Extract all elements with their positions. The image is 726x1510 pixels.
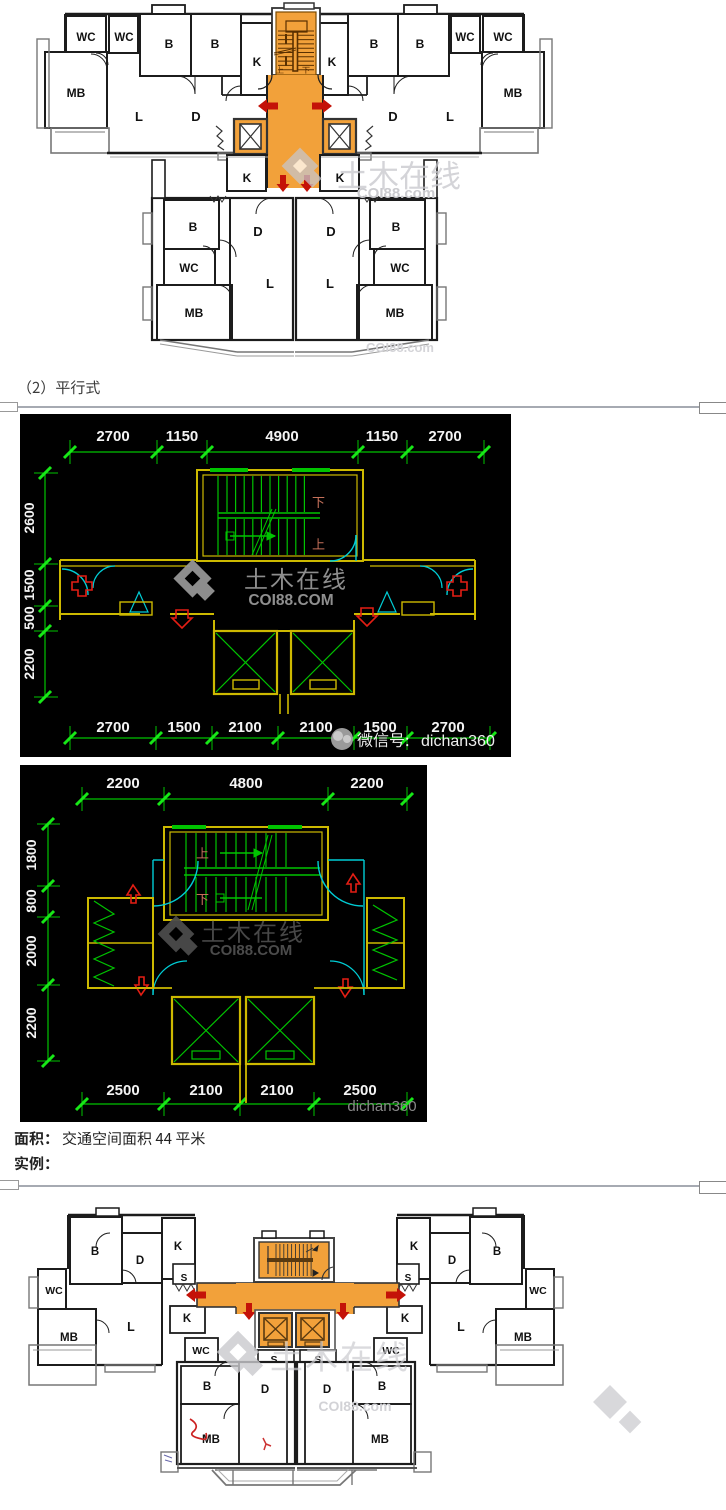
svg-text:WC: WC xyxy=(45,1285,63,1297)
svg-text:MB: MB xyxy=(67,86,86,100)
svg-text:D: D xyxy=(253,224,262,239)
svg-text:4900: 4900 xyxy=(265,428,298,445)
svg-text:L: L xyxy=(266,276,274,291)
svg-text:2200: 2200 xyxy=(23,1007,39,1038)
svg-text:2100: 2100 xyxy=(260,1082,293,1099)
svg-text:2200: 2200 xyxy=(106,775,139,792)
svg-text:B: B xyxy=(493,1246,501,1258)
svg-text:L: L xyxy=(446,109,454,124)
svg-text:2700: 2700 xyxy=(96,428,129,445)
svg-text:B: B xyxy=(165,37,174,51)
svg-text:B: B xyxy=(416,37,425,51)
svg-text:K: K xyxy=(253,55,262,69)
svg-text:WC: WC xyxy=(529,1285,547,1297)
svg-text:1500: 1500 xyxy=(21,569,37,600)
svg-text:1150: 1150 xyxy=(166,428,199,445)
svg-text:D: D xyxy=(261,1384,269,1396)
svg-text:4800: 4800 xyxy=(229,775,262,792)
svg-text:2100: 2100 xyxy=(228,719,261,736)
svg-text:WC: WC xyxy=(179,263,198,275)
svg-text:D: D xyxy=(191,109,200,124)
svg-text:S: S xyxy=(181,1273,188,1284)
svg-text:COI88.COM: COI88.COM xyxy=(248,592,333,609)
svg-text:D: D xyxy=(388,109,397,124)
svg-text:2600: 2600 xyxy=(21,502,37,533)
svg-text:B: B xyxy=(189,220,198,234)
svg-text:S: S xyxy=(405,1273,412,1284)
svg-text:COI88.com: COI88.com xyxy=(366,340,434,355)
svg-text:WC: WC xyxy=(76,32,95,44)
svg-text:WC: WC xyxy=(114,32,133,44)
svg-text:WC: WC xyxy=(390,263,409,275)
svg-text:2100: 2100 xyxy=(189,1082,222,1099)
svg-text:MB: MB xyxy=(60,1332,78,1344)
svg-text:2100: 2100 xyxy=(299,719,332,736)
svg-text:B: B xyxy=(211,37,220,51)
svg-text:D: D xyxy=(448,1255,456,1267)
svg-text:1500: 1500 xyxy=(363,719,396,736)
svg-text:WC: WC xyxy=(455,32,474,44)
svg-text:MB: MB xyxy=(185,306,204,320)
svg-text:2700: 2700 xyxy=(96,719,129,736)
svg-text:500: 500 xyxy=(21,606,37,630)
svg-text:2500: 2500 xyxy=(343,1082,376,1099)
svg-text:2200: 2200 xyxy=(350,775,383,792)
svg-text:COI88.COM: COI88.COM xyxy=(210,942,293,959)
svg-text:K: K xyxy=(328,55,337,69)
svg-text:1800: 1800 xyxy=(23,839,39,870)
svg-text:1500: 1500 xyxy=(167,719,200,736)
svg-text:COI88.com: COI88.com xyxy=(357,185,435,202)
svg-text:L: L xyxy=(127,1320,135,1334)
svg-text:2000: 2000 xyxy=(23,935,39,966)
svg-text:B: B xyxy=(91,1246,99,1258)
svg-text:COI88.com: COI88.com xyxy=(318,1398,391,1414)
svg-text:D: D xyxy=(326,224,335,239)
svg-text:K: K xyxy=(174,1241,183,1253)
svg-text:2500: 2500 xyxy=(106,1082,139,1099)
svg-text:L: L xyxy=(135,109,143,124)
svg-text:dichan360: dichan360 xyxy=(421,733,495,750)
svg-text:K: K xyxy=(401,1313,410,1325)
svg-text:L: L xyxy=(326,276,334,291)
svg-text:D: D xyxy=(323,1384,331,1396)
svg-text:MB: MB xyxy=(386,306,405,320)
svg-text:1150: 1150 xyxy=(366,428,399,445)
svg-text:B: B xyxy=(378,1381,386,1393)
svg-text:MB: MB xyxy=(504,86,523,100)
svg-text:B: B xyxy=(392,220,401,234)
svg-text:MB: MB xyxy=(514,1332,532,1344)
svg-text:K: K xyxy=(243,171,252,185)
svg-text:B: B xyxy=(203,1381,211,1393)
svg-text:B: B xyxy=(370,37,379,51)
svg-text:dichan360: dichan360 xyxy=(347,1098,416,1115)
svg-text:800: 800 xyxy=(23,889,39,913)
svg-text:K: K xyxy=(410,1241,419,1253)
svg-text:WC: WC xyxy=(493,32,512,44)
svg-text:L: L xyxy=(457,1320,465,1334)
svg-text:2200: 2200 xyxy=(21,648,37,679)
svg-text:2700: 2700 xyxy=(428,428,461,445)
svg-text:D: D xyxy=(136,1255,144,1267)
svg-text:WC: WC xyxy=(192,1345,210,1357)
svg-text:MB: MB xyxy=(371,1434,389,1446)
svg-text:K: K xyxy=(183,1313,192,1325)
